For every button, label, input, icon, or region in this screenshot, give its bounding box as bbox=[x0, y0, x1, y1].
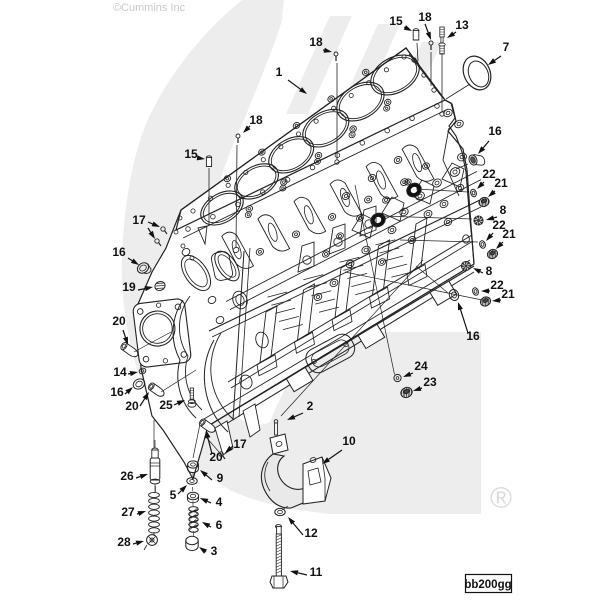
svg-text:20: 20 bbox=[112, 314, 126, 328]
svg-text:15: 15 bbox=[184, 147, 198, 161]
svg-text:1: 1 bbox=[276, 65, 283, 79]
svg-text:5: 5 bbox=[170, 488, 177, 502]
svg-text:16: 16 bbox=[488, 124, 502, 138]
svg-text:18: 18 bbox=[418, 10, 432, 24]
svg-text:2: 2 bbox=[307, 399, 314, 413]
svg-text:21: 21 bbox=[502, 227, 516, 241]
svg-text:11: 11 bbox=[310, 565, 323, 579]
svg-text:10: 10 bbox=[342, 434, 356, 448]
svg-text:15: 15 bbox=[389, 14, 403, 28]
svg-text:7: 7 bbox=[503, 40, 510, 54]
svg-text:8: 8 bbox=[500, 203, 507, 217]
svg-text:18: 18 bbox=[309, 35, 323, 49]
svg-text:17: 17 bbox=[233, 437, 247, 451]
svg-text:18: 18 bbox=[249, 113, 263, 127]
svg-text:16: 16 bbox=[112, 245, 126, 259]
svg-text:21: 21 bbox=[501, 287, 515, 301]
svg-text:9: 9 bbox=[217, 471, 224, 485]
svg-text:®: ® bbox=[490, 482, 512, 515]
svg-text:27: 27 bbox=[121, 505, 135, 519]
svg-text:16: 16 bbox=[466, 329, 480, 343]
svg-text:17: 17 bbox=[132, 213, 146, 227]
svg-text:20: 20 bbox=[125, 399, 139, 413]
svg-text:8: 8 bbox=[486, 264, 493, 278]
svg-text:13: 13 bbox=[455, 18, 469, 32]
svg-text:bb200gg: bb200gg bbox=[464, 579, 511, 591]
svg-text:©Cummins Inc: ©Cummins Inc bbox=[113, 2, 186, 14]
svg-text:19: 19 bbox=[122, 280, 136, 294]
svg-text:21: 21 bbox=[494, 176, 508, 190]
svg-text:25: 25 bbox=[159, 398, 173, 412]
svg-text:6: 6 bbox=[216, 518, 223, 532]
svg-text:14: 14 bbox=[113, 365, 127, 379]
svg-text:16: 16 bbox=[110, 385, 124, 399]
svg-text:24: 24 bbox=[414, 359, 428, 373]
svg-text:28: 28 bbox=[117, 535, 131, 549]
svg-text:26: 26 bbox=[120, 469, 134, 483]
svg-text:23: 23 bbox=[423, 375, 437, 389]
svg-text:12: 12 bbox=[304, 526, 318, 540]
svg-text:3: 3 bbox=[211, 544, 218, 558]
svg-text:4: 4 bbox=[216, 495, 223, 509]
